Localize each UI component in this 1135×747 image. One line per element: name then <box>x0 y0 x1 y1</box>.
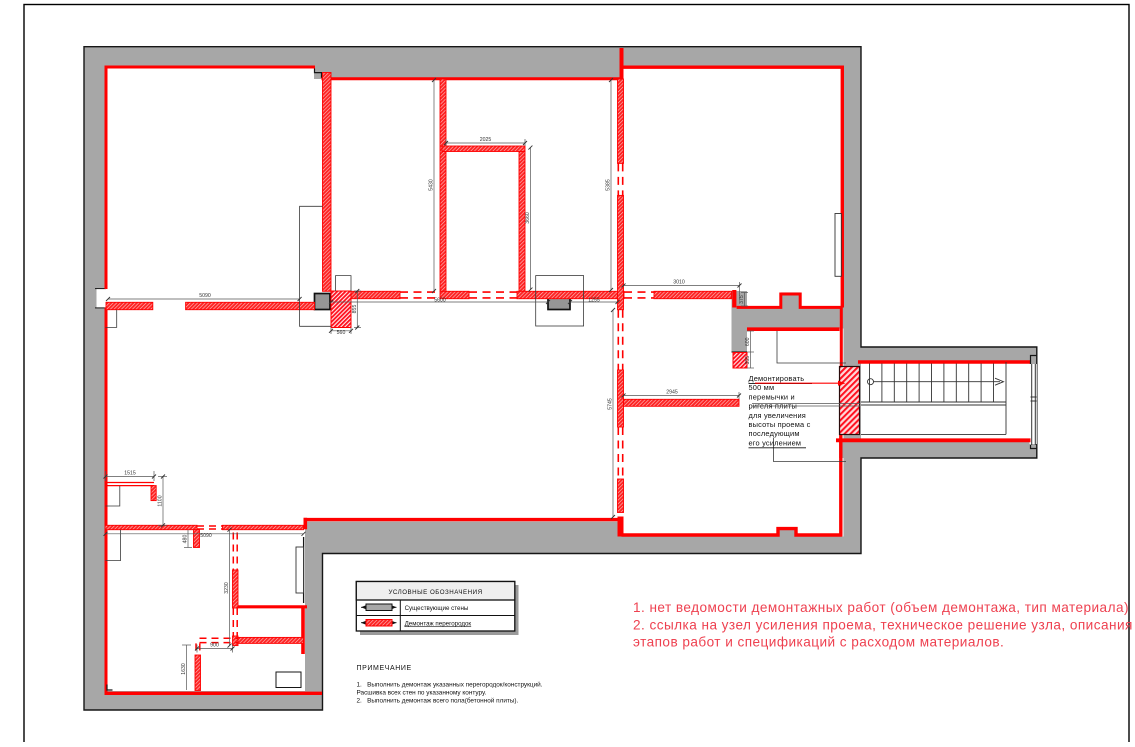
svg-text:Демонтаж перегородок: Демонтаж перегородок <box>405 620 472 627</box>
svg-text:900: 900 <box>210 643 219 649</box>
svg-text:480: 480 <box>183 535 189 544</box>
svg-text:600: 600 <box>745 337 751 346</box>
svg-text:Существующие стены: Существующие стены <box>405 605 469 612</box>
svg-text:5745: 5745 <box>608 398 614 410</box>
svg-text:высоты проема с: высоты проема с <box>749 420 811 429</box>
svg-text:500 мм: 500 мм <box>749 383 775 392</box>
svg-text:Расшивка всех стен по указанно: Расшивка всех стен по указанному контуру… <box>357 690 487 697</box>
svg-text:последующим: последующим <box>749 429 800 438</box>
svg-text:для увеличения: для увеличения <box>749 411 807 420</box>
svg-text:1630: 1630 <box>181 663 187 675</box>
svg-text:УСЛОВНЫЕ ОБОЗНАЧЕНИЯ: УСЛОВНЫЕ ОБОЗНАЧЕНИЯ <box>388 589 482 596</box>
svg-text:1100: 1100 <box>158 495 164 506</box>
svg-text:3660: 3660 <box>525 212 531 224</box>
svg-text:5385: 5385 <box>606 179 612 191</box>
svg-text:перемычки и: перемычки и <box>749 392 795 401</box>
svg-text:1515: 1515 <box>124 471 136 477</box>
svg-text:560: 560 <box>337 330 346 336</box>
svg-text:1. нет ведомости демонтажных р: 1. нет ведомости демонтажных работ (объе… <box>633 600 1129 615</box>
svg-text:5430: 5430 <box>429 179 435 191</box>
svg-text:5090: 5090 <box>200 533 212 539</box>
svg-text:его усилением: его усилением <box>749 438 802 447</box>
svg-text:5600: 5600 <box>434 297 446 303</box>
svg-text:Демонтировать: Демонтировать <box>749 374 805 383</box>
svg-text:1. Выполнить демонтаж указан: 1. Выполнить демонтаж указанных перегоро… <box>357 681 543 689</box>
svg-text:5090: 5090 <box>199 293 211 299</box>
svg-text:этапов работ и спецификаций с: этапов работ и спецификаций с расходом м… <box>633 635 1004 650</box>
svg-text:3010: 3010 <box>673 280 685 286</box>
svg-text:2. Выполнить демонтаж всего: 2. Выполнить демонтаж всего пола(бетонно… <box>357 697 519 705</box>
svg-text:3230: 3230 <box>224 582 230 594</box>
svg-text:375: 375 <box>739 295 745 304</box>
svg-text:2945: 2945 <box>666 390 678 396</box>
svg-text:1255: 1255 <box>588 297 600 303</box>
svg-text:355: 355 <box>745 356 751 365</box>
svg-text:855: 855 <box>352 305 358 314</box>
svg-text:2. ссылка на узел усиления про: 2. ссылка на узел усиления проема, техни… <box>633 618 1133 633</box>
svg-text:2025: 2025 <box>480 137 492 143</box>
svg-text:ПРИМЕЧАНИЕ: ПРИМЕЧАНИЕ <box>357 665 412 672</box>
